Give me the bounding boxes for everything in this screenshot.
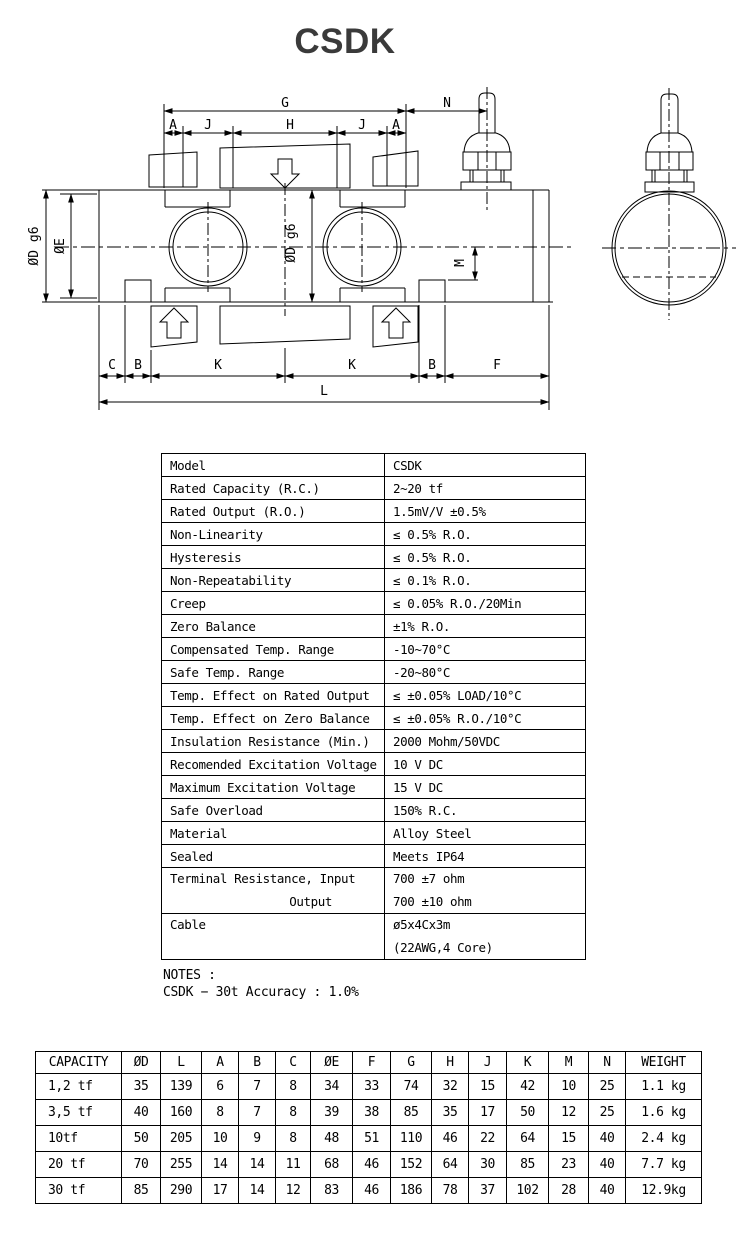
dim-cell: 85 (122, 1178, 161, 1204)
dim-header-cell: F (353, 1052, 391, 1074)
dim-header-cell: ØE (311, 1052, 353, 1074)
spec-row: ModelCSDK (162, 454, 586, 477)
dim-cell: 1.1 kg (626, 1074, 702, 1100)
spec-label-cell: Sealed (162, 845, 385, 868)
dim-header-cell: WEIGHT (626, 1052, 702, 1074)
support-up-arrow-left-icon (160, 308, 188, 338)
notes-text: CSDK − 30t Accuracy : 1.0% (163, 984, 359, 1001)
dim-cell: 23 (549, 1152, 589, 1178)
spec-value-cell: CSDK (385, 454, 586, 477)
technical-drawing: G N A J H J A ØD g6 ØE ØD g6 M C B K K B… (0, 0, 750, 445)
dim-cell: 34 (311, 1074, 353, 1100)
dim-cell: 30 (469, 1152, 507, 1178)
dim-cell: 255 (161, 1152, 202, 1178)
dim-cell: 40 (589, 1152, 626, 1178)
dim-cell: 50 (507, 1100, 549, 1126)
spec-value-line: (22AWG,4 Core) (385, 937, 585, 960)
dim-header-cell: B (239, 1052, 276, 1074)
dim-cell: 102 (507, 1178, 549, 1204)
spec-value-cell: 700 ±7 ohm700 ±10 ohm (385, 868, 586, 914)
spec-row: Zero Balance±1% R.O. (162, 615, 586, 638)
spec-row: Recomended Excitation Voltage10 V DC (162, 753, 586, 776)
spec-label-cell: Non-Linearity (162, 523, 385, 546)
dim-cell: 48 (311, 1126, 353, 1152)
dim-cell: 22 (469, 1126, 507, 1152)
spec-value-cell: ≤ 0.1% R.O. (385, 569, 586, 592)
dim-cell: 152 (391, 1152, 432, 1178)
spec-row: Compensated Temp. Range-10~70°C (162, 638, 586, 661)
dim-header-cell: N (589, 1052, 626, 1074)
dim-label-m: M (453, 259, 468, 267)
dim-header-cell: L (161, 1052, 202, 1074)
spec-label-cell: Maximum Excitation Voltage (162, 776, 385, 799)
dim-cell: 14 (239, 1178, 276, 1204)
dim-cell: 32 (432, 1074, 469, 1100)
dim-cell: 186 (391, 1178, 432, 1204)
dim-header-cell: ØD (122, 1052, 161, 1074)
spec-table: ModelCSDKRated Capacity (R.C.)2~20 tfRat… (161, 453, 586, 960)
dim-cell: 20 tf (36, 1152, 122, 1178)
dim-cell: 83 (311, 1178, 353, 1204)
dim-cell: 8 (276, 1100, 311, 1126)
dim-cell: 17 (469, 1100, 507, 1126)
dim-label-g: G (281, 96, 289, 111)
dim-cell: 17 (202, 1178, 239, 1204)
dim-cell: 40 (589, 1178, 626, 1204)
spec-row: Rated Output (R.O.)1.5mV/V ±0.5% (162, 500, 586, 523)
dim-cell: 290 (161, 1178, 202, 1204)
dim-cell: 35 (432, 1100, 469, 1126)
dim-cell: 64 (507, 1126, 549, 1152)
spec-value-cell: Alloy Steel (385, 822, 586, 845)
spec-row: Temp. Effect on Zero Balance≤ ±0.05% R.O… (162, 707, 586, 730)
dim-header-cell: CAPACITY (36, 1052, 122, 1074)
spec-value-line: 700 ±7 ohm (385, 868, 585, 891)
dim-cell: 2.4 kg (626, 1126, 702, 1152)
dim-cell: 7 (239, 1100, 276, 1126)
spec-value-cell: ≤ ±0.05% LOAD/10°C (385, 684, 586, 707)
dim-cell: 15 (469, 1074, 507, 1100)
spec-row: SealedMeets IP64 (162, 845, 586, 868)
spec-row: Cableø5x4Cx3m(22AWG,4 Core) (162, 914, 586, 960)
dim-cell: 46 (353, 1178, 391, 1204)
dim-row: 10tf502051098485111046226415402.4 kg (36, 1126, 702, 1152)
spec-label-cell: Safe Temp. Range (162, 661, 385, 684)
spec-label-cell: Zero Balance (162, 615, 385, 638)
spec-value-line: 700 ±10 ohm (385, 891, 585, 914)
notes: NOTES : CSDK − 30t Accuracy : 1.0% (163, 967, 359, 1001)
dim-cell: 7.7 kg (626, 1152, 702, 1178)
dim-cell: 14 (202, 1152, 239, 1178)
dim-cell: 28 (549, 1178, 589, 1204)
dim-row: 30 tf8529017141283461867837102284012.9kg (36, 1178, 702, 1204)
dim-cell: 10 (202, 1126, 239, 1152)
dim-row: 20 tf70255141411684615264308523407.7 kg (36, 1152, 702, 1178)
dim-cell: 25 (589, 1074, 626, 1100)
dim-cell: 38 (353, 1100, 391, 1126)
spec-value-cell: Meets IP64 (385, 845, 586, 868)
dim-label-l: L (320, 384, 328, 399)
spec-row: Non-Repeatability≤ 0.1% R.O. (162, 569, 586, 592)
dim-cell: 9 (239, 1126, 276, 1152)
spec-value-cell: ≤ 0.5% R.O. (385, 523, 586, 546)
dim-cell: 70 (122, 1152, 161, 1178)
dim-cell: 14 (239, 1152, 276, 1178)
dim-cell: 12 (549, 1100, 589, 1126)
spec-label-line: Cable (162, 914, 384, 937)
spec-label-line (162, 937, 384, 960)
dim-label-f: F (493, 358, 501, 373)
dim-cell: 1.6 kg (626, 1100, 702, 1126)
dim-label-j-left: J (204, 118, 212, 133)
dim-label-b-right: B (428, 358, 436, 373)
dim-cell: 8 (276, 1074, 311, 1100)
spec-row: Terminal Resistance, InputOutput700 ±7 o… (162, 868, 586, 914)
dim-cell: 46 (432, 1126, 469, 1152)
dim-cell: 8 (276, 1126, 311, 1152)
dim-cell: 1,2 tf (36, 1074, 122, 1100)
dim-header-cell: M (549, 1052, 589, 1074)
dim-cell: 37 (469, 1178, 507, 1204)
dim-cell: 68 (311, 1152, 353, 1178)
dim-cell: 160 (161, 1100, 202, 1126)
spec-label-cell: Terminal Resistance, InputOutput (162, 868, 385, 914)
side-view (602, 88, 736, 320)
dim-label-k-left: K (214, 358, 222, 373)
dim-label-dia-e: ØE (53, 238, 68, 254)
dim-header-cell: A (202, 1052, 239, 1074)
spec-row: Safe Temp. Range-20~80°C (162, 661, 586, 684)
spec-label-cell: Non-Repeatability (162, 569, 385, 592)
spec-label-cell: Temp. Effect on Rated Output (162, 684, 385, 707)
dimension-table: CAPACITYØDLABCØEFGHJKMNWEIGHT 1,2 tf3513… (35, 1051, 702, 1204)
dim-header-row: CAPACITYØDLABCØEFGHJKMNWEIGHT (36, 1052, 702, 1074)
spec-value-cell: 2~20 tf (385, 477, 586, 500)
dim-row: 3,5 tf4016087839388535175012251.6 kg (36, 1100, 702, 1126)
dim-cell: 12 (276, 1178, 311, 1204)
dim-label-c: C (108, 358, 116, 373)
dim-cell: 50 (122, 1126, 161, 1152)
spec-value-cell: 150% R.C. (385, 799, 586, 822)
dim-cell: 11 (276, 1152, 311, 1178)
spec-row: Non-Linearity≤ 0.5% R.O. (162, 523, 586, 546)
dim-cell: 7 (239, 1074, 276, 1100)
dim-cell: 39 (311, 1100, 353, 1126)
spec-row: Hysteresis≤ 0.5% R.O. (162, 546, 586, 569)
dim-cell: 12.9kg (626, 1178, 702, 1204)
spec-row: Insulation Resistance (Min.)2000 Mohm/50… (162, 730, 586, 753)
spec-label-cell: Rated Output (R.O.) (162, 500, 385, 523)
dim-cell: 10 (549, 1074, 589, 1100)
spec-value-cell: ≤ 0.5% R.O. (385, 546, 586, 569)
dim-cell: 15 (549, 1126, 589, 1152)
spec-value-cell: ±1% R.O. (385, 615, 586, 638)
dim-cell: 40 (589, 1126, 626, 1152)
dim-cell: 25 (589, 1100, 626, 1126)
support-up-arrow-right-icon (382, 308, 410, 338)
spec-row: Maximum Excitation Voltage15 V DC (162, 776, 586, 799)
spec-label-cell: Model (162, 454, 385, 477)
dim-row: 1,2 tf3513967834337432154210251.1 kg (36, 1074, 702, 1100)
spec-value-cell: -20~80°C (385, 661, 586, 684)
dim-cell: 40 (122, 1100, 161, 1126)
spec-value-cell: 15 V DC (385, 776, 586, 799)
dim-label-dia-d-left: ØD g6 (27, 226, 42, 265)
dim-cell: 110 (391, 1126, 432, 1152)
dim-header-cell: J (469, 1052, 507, 1074)
dim-cell: 78 (432, 1178, 469, 1204)
spec-label-cell: Cable (162, 914, 385, 960)
dim-header-cell: C (276, 1052, 311, 1074)
spec-label-cell: Material (162, 822, 385, 845)
spec-value-cell: ø5x4Cx3m(22AWG,4 Core) (385, 914, 586, 960)
dim-cell: 3,5 tf (36, 1100, 122, 1126)
spec-row: Creep≤ 0.05% R.O./20Min (162, 592, 586, 615)
spec-value-cell: ≤ ±0.05% R.O./10°C (385, 707, 586, 730)
spec-row: MaterialAlloy Steel (162, 822, 586, 845)
spec-value-cell: 1.5mV/V ±0.5% (385, 500, 586, 523)
spec-value-cell: 2000 Mohm/50VDC (385, 730, 586, 753)
dim-label-j-right: J (358, 118, 366, 133)
spec-label-cell: Safe Overload (162, 799, 385, 822)
spec-label-line: Terminal Resistance, Input (162, 868, 384, 891)
dim-label-n: N (443, 96, 451, 111)
spec-row: Temp. Effect on Rated Output≤ ±0.05% LOA… (162, 684, 586, 707)
spec-value-cell: ≤ 0.05% R.O./20Min (385, 592, 586, 615)
spec-label-cell: Creep (162, 592, 385, 615)
spec-label-cell: Compensated Temp. Range (162, 638, 385, 661)
spec-value-line: ø5x4Cx3m (385, 914, 585, 937)
spec-row: Safe Overload150% R.C. (162, 799, 586, 822)
notes-heading: NOTES : (163, 967, 359, 984)
spec-value-cell: -10~70°C (385, 638, 586, 661)
dim-cell: 30 tf (36, 1178, 122, 1204)
dim-label-dia-d-center: ØD g6 (284, 223, 299, 262)
dim-cell: 33 (353, 1074, 391, 1100)
dim-cell: 51 (353, 1126, 391, 1152)
dim-cell: 35 (122, 1074, 161, 1100)
dim-cell: 85 (391, 1100, 432, 1126)
dim-label-k-right: K (348, 358, 356, 373)
dim-cell: 10tf (36, 1126, 122, 1152)
dim-label-b-left: B (134, 358, 142, 373)
dim-cell: 74 (391, 1074, 432, 1100)
dim-cell: 64 (432, 1152, 469, 1178)
spec-row: Rated Capacity (R.C.)2~20 tf (162, 477, 586, 500)
dim-header-cell: G (391, 1052, 432, 1074)
dim-label-h: H (286, 118, 294, 133)
dim-label-a-right: A (392, 118, 400, 133)
spec-label-cell: Hysteresis (162, 546, 385, 569)
spec-label-cell: Rated Capacity (R.C.) (162, 477, 385, 500)
dim-cell: 6 (202, 1074, 239, 1100)
spec-value-cell: 10 V DC (385, 753, 586, 776)
spec-label-cell: Temp. Effect on Zero Balance (162, 707, 385, 730)
datasheet-page: CSDK (0, 0, 750, 1256)
cable-connector-front (461, 93, 511, 190)
dim-cell: 139 (161, 1074, 202, 1100)
dim-cell: 42 (507, 1074, 549, 1100)
spec-label-cell: Insulation Resistance (Min.) (162, 730, 385, 753)
dim-cell: 8 (202, 1100, 239, 1126)
dim-cell: 46 (353, 1152, 391, 1178)
spec-label-cell: Recomended Excitation Voltage (162, 753, 385, 776)
dim-label-a-left: A (169, 118, 177, 133)
dim-header-cell: K (507, 1052, 549, 1074)
dim-header-cell: H (432, 1052, 469, 1074)
spec-label-line: Output (162, 891, 384, 914)
dim-cell: 85 (507, 1152, 549, 1178)
dim-cell: 205 (161, 1126, 202, 1152)
